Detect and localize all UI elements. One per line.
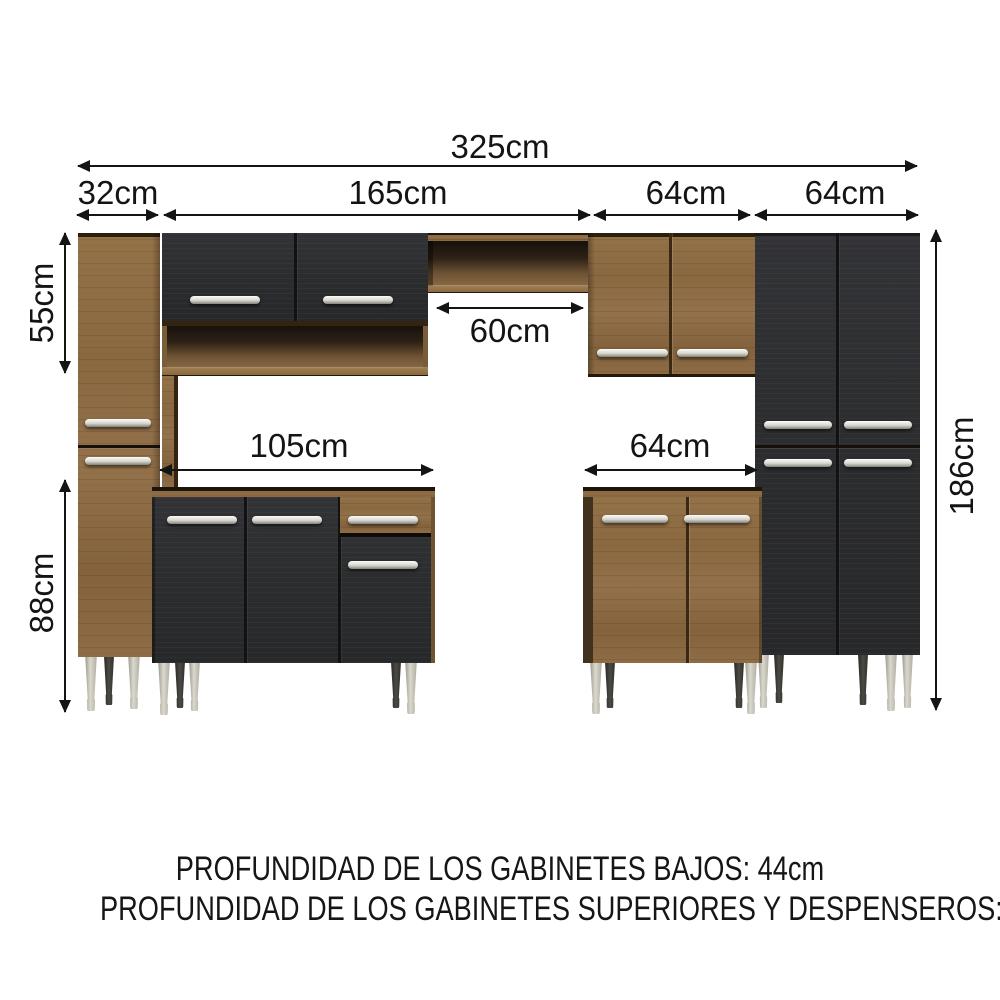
cabinet-leg bbox=[901, 653, 914, 708]
open-shelf bbox=[428, 241, 588, 286]
side-shade bbox=[152, 497, 155, 663]
dim-label-segment-64a: 64cm bbox=[646, 175, 727, 211]
door-handle bbox=[844, 421, 912, 429]
dim-label-base-right: 64cm bbox=[630, 428, 711, 464]
base-cabinet-right bbox=[583, 487, 762, 663]
door-handle bbox=[677, 349, 748, 357]
cabinet-top-edge bbox=[78, 233, 160, 237]
cabinet-body bbox=[152, 497, 435, 663]
shelf-top-board bbox=[428, 233, 588, 241]
door-handle bbox=[844, 459, 912, 467]
base-cabinet-left bbox=[152, 487, 435, 663]
shelf-board bbox=[162, 368, 428, 375]
dim-arrow-segment-64b bbox=[755, 214, 918, 216]
side-shade bbox=[759, 497, 762, 663]
cabinet-doors bbox=[593, 497, 762, 663]
depth-note-upper-cabinets: PROFUNDIDAD DE LOS GABINETES SUPERIORES … bbox=[100, 889, 900, 929]
door-handle bbox=[348, 561, 418, 569]
pantry-left bbox=[78, 233, 160, 657]
drawer-front bbox=[340, 497, 431, 533]
cabinet-leg bbox=[733, 661, 745, 708]
door-handle bbox=[167, 516, 237, 524]
door-seam bbox=[244, 497, 247, 663]
cabinet-leg bbox=[188, 661, 201, 711]
dim-label-segment-64b: 64cm bbox=[805, 175, 886, 211]
dim-arrow-base-left bbox=[160, 469, 433, 471]
dim-label-total-width: 325cm bbox=[450, 129, 549, 165]
side-panel bbox=[583, 497, 593, 663]
dim-label-base-left: 105cm bbox=[249, 428, 348, 464]
dim-arrow-segment-64a bbox=[594, 214, 750, 216]
cabinet-leg bbox=[103, 655, 115, 705]
wall-cabinet-right bbox=[588, 233, 755, 377]
dim-label-segment-165: 165cm bbox=[348, 175, 447, 211]
cabinet-leg bbox=[773, 653, 785, 703]
dim-arrow-base-right bbox=[585, 469, 757, 471]
center-open-shelf bbox=[428, 233, 588, 292]
dim-label-pantry-height: 186cm bbox=[944, 416, 980, 515]
dim-arrow-base-height bbox=[64, 480, 66, 712]
cabinet-leg bbox=[744, 661, 758, 714]
door-seam bbox=[78, 445, 160, 448]
door-handle bbox=[252, 516, 322, 524]
drawer-seam bbox=[340, 533, 435, 537]
cabinet-leg bbox=[127, 655, 141, 709]
side-shade bbox=[174, 373, 178, 489]
cabinet-leg bbox=[404, 661, 418, 714]
drawer-handle bbox=[348, 516, 418, 524]
dim-label-center-opening: 60cm bbox=[470, 313, 551, 349]
shelf-side-shadow bbox=[428, 241, 433, 286]
cabinet-leg bbox=[174, 661, 186, 708]
door-seam bbox=[836, 233, 839, 655]
door-handle bbox=[684, 515, 750, 523]
door-handle bbox=[85, 419, 151, 427]
open-shelf bbox=[162, 326, 428, 368]
door-handle bbox=[764, 459, 832, 467]
door-handle bbox=[323, 296, 393, 304]
kitchen-cabinet-dimension-diagram: 325cm 32cm 165cm 64cm 64cm 60cm 105cm 64… bbox=[0, 0, 1000, 1000]
door-handle bbox=[764, 421, 832, 429]
door-handle bbox=[190, 296, 260, 304]
pantry-right bbox=[755, 233, 920, 655]
cabinet-leg bbox=[390, 661, 402, 708]
side-panel bbox=[431, 497, 435, 663]
depth-note-base-cabinets: PROFUNDIDAD DE LOS GABINETES BAJOS: 44cm bbox=[100, 849, 900, 889]
cabinet-leg bbox=[84, 655, 98, 711]
door-seam bbox=[294, 233, 297, 321]
dim-arrow-upper-left-height bbox=[64, 233, 66, 373]
door-seam bbox=[755, 445, 920, 448]
dim-arrow-center-opening bbox=[437, 307, 583, 309]
dim-arrow-segment-165 bbox=[164, 214, 590, 216]
cabinet-leg bbox=[589, 661, 603, 714]
dim-label-base-height: 88cm bbox=[24, 553, 60, 634]
cabinet-leg bbox=[884, 653, 898, 711]
dim-label-segment-32: 32cm bbox=[78, 175, 159, 211]
door-handle bbox=[85, 457, 151, 465]
cabinet-leg bbox=[157, 661, 171, 715]
cabinet-leg bbox=[604, 661, 616, 708]
side-shade bbox=[588, 233, 595, 377]
wall-cabinet-doors bbox=[162, 233, 428, 321]
door-handle bbox=[602, 515, 668, 523]
dim-arrow-segment-32 bbox=[77, 214, 158, 216]
dim-arrow-pantry-height bbox=[935, 230, 937, 710]
door-seam bbox=[669, 233, 672, 377]
door-handle bbox=[597, 349, 668, 357]
cabinet-leg bbox=[857, 653, 869, 705]
shelf-board bbox=[428, 286, 588, 292]
dim-label-upper-left-height: 55cm bbox=[24, 263, 60, 344]
cabinet-bottom-edge bbox=[588, 374, 755, 377]
wall-cabinet-left bbox=[162, 233, 428, 375]
dim-arrow-total-width bbox=[78, 165, 917, 167]
